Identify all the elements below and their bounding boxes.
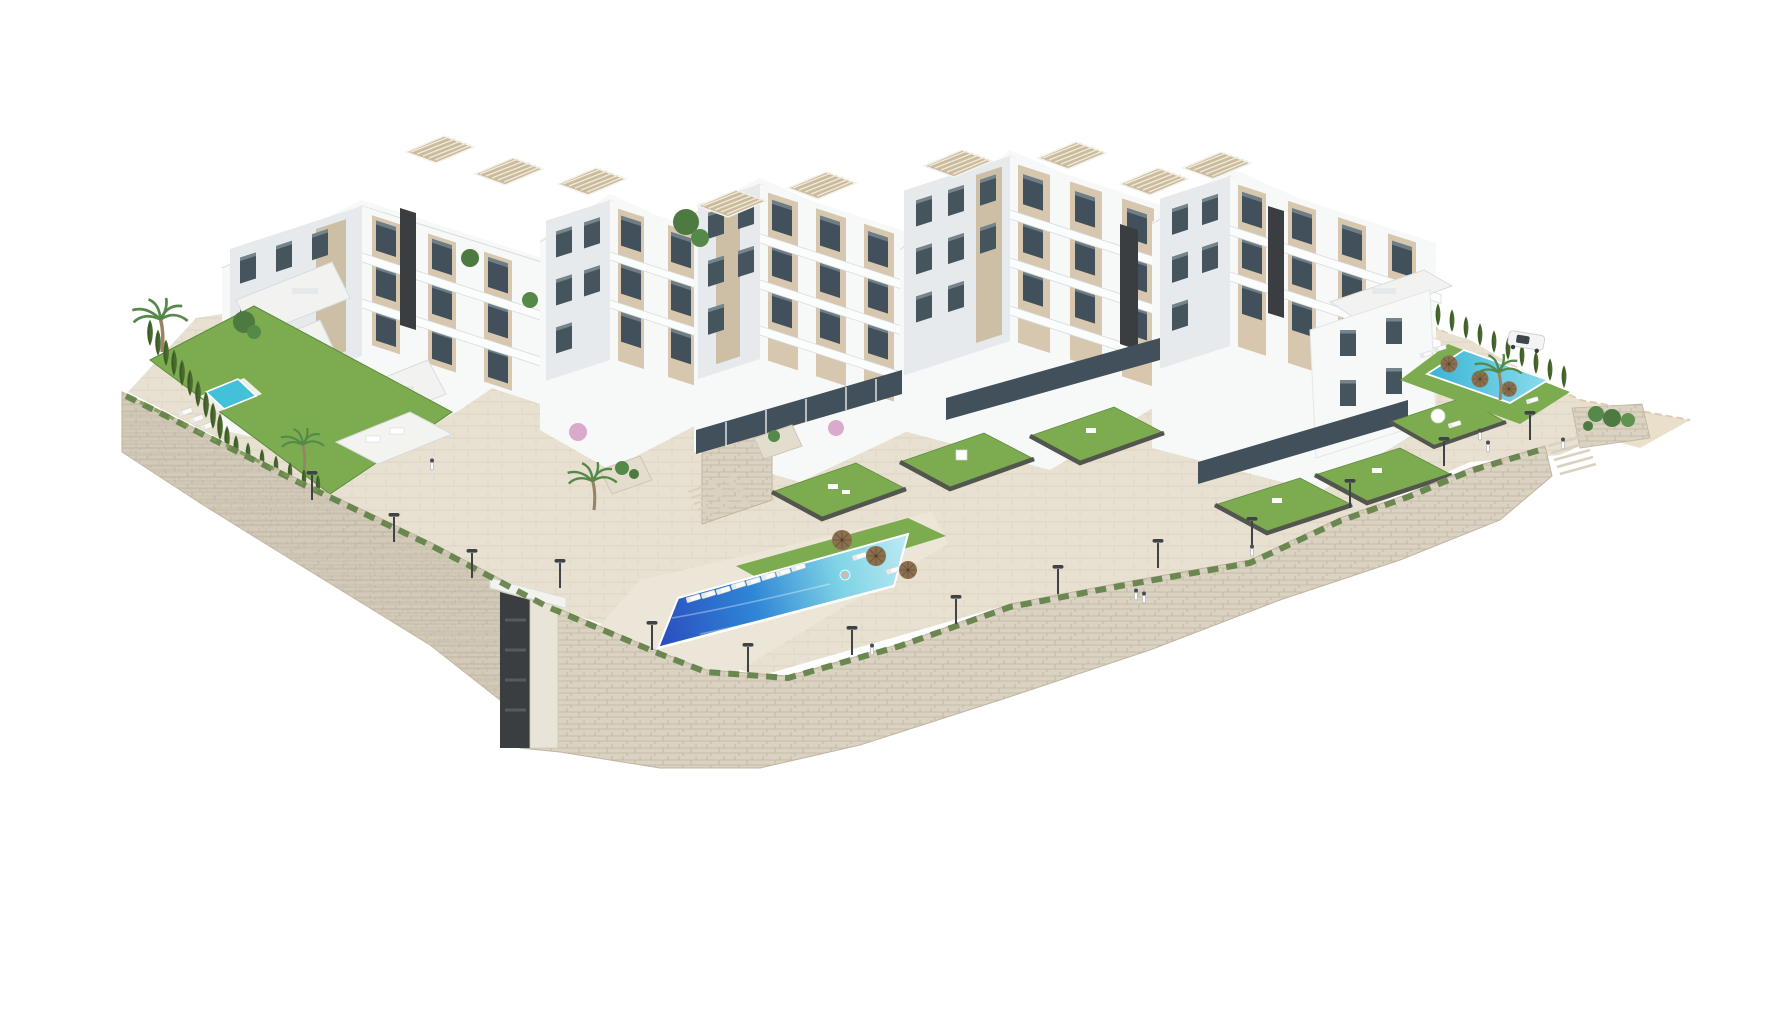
wicker-parasol (866, 546, 886, 566)
pink-blossom-tree (569, 423, 587, 441)
wicker-parasol (1472, 371, 1489, 388)
architectural-render (0, 0, 1780, 1024)
gazebo (956, 450, 967, 460)
stairwell-tower (490, 578, 566, 748)
dark-accent-slab (400, 208, 416, 330)
wicker-parasol (832, 530, 852, 550)
wicker-parasol (899, 561, 917, 579)
dark-accent-slab (1268, 206, 1284, 318)
swimmer (842, 572, 847, 577)
pink-blossom-tree (828, 420, 844, 436)
dark-accent-slab (1120, 224, 1138, 350)
wicker-parasol (1441, 356, 1458, 373)
white-parasol (1431, 409, 1445, 423)
wicker-parasol (1501, 381, 1517, 397)
render-page (0, 0, 1780, 1024)
